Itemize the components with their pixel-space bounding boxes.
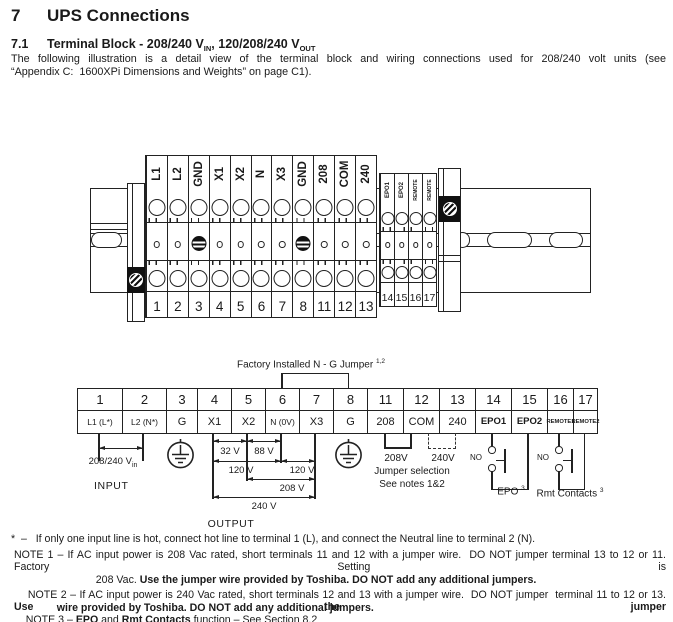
- cell-number: 4: [198, 389, 231, 411]
- terminal-screw-icon: [399, 242, 405, 248]
- terminal-screw-icon: [363, 241, 370, 248]
- rmt-contacts-label: Rmt Contacts 3: [537, 487, 604, 499]
- dim-label: 240 V: [252, 501, 277, 512]
- dim-label: 208 V: [280, 483, 305, 494]
- cell-number: 1: [78, 389, 122, 411]
- terminal-screw-icon: [413, 242, 419, 248]
- epo-label: EPO 3: [497, 485, 525, 497]
- terminal-table: 1L1 (L*) 2L2 (N*) 3G 4X1 5X2 6N (0V) 7X3…: [77, 388, 598, 434]
- terminal-column: L1 1: [146, 156, 167, 317]
- terminal-cell: 6N (0V): [265, 389, 299, 433]
- rmt-wire: [558, 433, 560, 446]
- note-3: NOTE 3 – EPO and Rmt Contacts function –…: [14, 602, 666, 622]
- input-label: INPUT: [94, 480, 129, 492]
- cell-number: 12: [404, 389, 439, 411]
- terminal-number: 1: [147, 299, 167, 314]
- cell-number: 14: [476, 389, 511, 411]
- wire-port-icon: [358, 270, 375, 287]
- terminal-label: X3: [276, 167, 288, 181]
- jumper-selection-text: Jumper selection: [374, 466, 450, 477]
- wire-port-icon: [148, 199, 165, 216]
- terminal-column: EPO2 15: [394, 174, 408, 306]
- wire-port-icon: [381, 266, 394, 279]
- cell-label: X3: [300, 411, 333, 434]
- terminal-screw-icon: [279, 241, 286, 248]
- terminal-label: X2: [235, 167, 247, 181]
- terminal-cell: 5X2: [231, 389, 265, 433]
- terminal-label: GND: [297, 161, 309, 187]
- wire-port-icon: [337, 199, 354, 216]
- terminal-label: N: [255, 170, 267, 178]
- terminal-label: L2: [172, 167, 184, 180]
- dim-arrow-32v: [213, 441, 247, 442]
- terminal-screw-icon: [237, 241, 244, 248]
- cell-number: 17: [574, 389, 597, 411]
- terminal-cell: 16REMOTE1: [547, 389, 573, 433]
- wire-port-icon: [169, 270, 186, 287]
- wire-port-icon: [316, 270, 333, 287]
- terminal-screw-icon: [342, 241, 349, 248]
- rmt-no-label: NO: [537, 453, 549, 462]
- cell-number: 5: [232, 389, 265, 411]
- terminal-screw-icon: [258, 241, 265, 248]
- ground-screw-icon: [191, 236, 206, 251]
- cell-number: 7: [300, 389, 333, 411]
- terminal-number: 8: [293, 299, 313, 314]
- output-wire-x1: [212, 433, 214, 499]
- terminal-number: 4: [210, 299, 230, 314]
- cell-label: X1: [198, 411, 231, 434]
- cell-label: L2 (N*): [123, 411, 166, 434]
- screw-head-icon: [129, 273, 143, 287]
- terminal-cell: 7X3: [299, 389, 333, 433]
- subsection-number: 7.1: [11, 37, 47, 51]
- terminal-column: REMOTE 16: [408, 174, 422, 306]
- cell-label: N (0V): [266, 411, 299, 434]
- cell-label: REMOTE1: [548, 411, 573, 434]
- cell-label: 208: [368, 411, 403, 434]
- terminal-number: 11: [314, 299, 334, 314]
- dim-label: 120 V: [229, 465, 254, 476]
- screw-head-icon: [443, 202, 457, 216]
- dim-label: 32 V: [220, 446, 240, 457]
- subsection-title: 7.1Terminal Block - 208/240 VIN, 120/208…: [11, 37, 315, 51]
- terminal-number: 2: [168, 299, 188, 314]
- wire-port-icon: [381, 212, 394, 225]
- cell-label: G: [334, 411, 367, 434]
- terminal-column: 208 11: [313, 156, 334, 317]
- terminal-label: X1: [214, 167, 226, 181]
- wire-port-icon: [211, 270, 228, 287]
- terminal-column: N 6: [251, 156, 272, 317]
- cell-label: REMOTE2: [574, 411, 597, 434]
- terminal-number: 15: [395, 292, 408, 304]
- jumper-label-208: 208V: [384, 453, 407, 464]
- intro-line-2: “Appendix C: 1600XPi Dimensions and Weig…: [11, 66, 666, 78]
- wire-port-icon: [253, 270, 270, 287]
- terminal-label: EPO1: [385, 182, 391, 198]
- terminal-number: 16: [409, 292, 422, 304]
- terminal-column: X3 7: [271, 156, 292, 317]
- input-dimension-arrow: [99, 448, 143, 449]
- terminal-screw-icon: [321, 241, 328, 248]
- terminal-cell: 11208: [367, 389, 403, 433]
- jumper-selection-text: See notes 1&2: [379, 479, 445, 490]
- subscript-in: IN: [204, 44, 212, 53]
- terminal-screw-icon: [385, 242, 391, 248]
- end-stop-lines: [439, 255, 460, 262]
- dim-arrow-88v: [247, 441, 281, 442]
- cell-label: EPO1: [476, 411, 511, 434]
- cell-number: 16: [548, 389, 573, 411]
- cell-label: G: [167, 411, 197, 434]
- rail-slot: [549, 232, 583, 248]
- pushbutton-icon: [496, 460, 505, 461]
- wire-port-icon: [169, 199, 186, 216]
- contact-node-icon: [488, 446, 496, 454]
- factory-jumper-label: Factory Installed N - G Jumper 1,2: [237, 358, 385, 370]
- terminal-label: EPO2: [399, 182, 405, 198]
- wire-port-icon: [274, 199, 291, 216]
- jumper-solid-208: [384, 433, 412, 449]
- dim-label: 120 V: [290, 465, 315, 476]
- wire-port-icon: [358, 199, 375, 216]
- pushbutton-icon: [563, 460, 572, 461]
- wire-port-icon: [423, 212, 436, 225]
- terminal-cell: 12COM: [403, 389, 439, 433]
- terminal-cell: 8G: [333, 389, 367, 433]
- cell-label: COM: [404, 411, 439, 434]
- cell-label: EPO2: [512, 411, 547, 434]
- factory-jumper-line: [281, 373, 349, 374]
- rmt-wire: [584, 433, 586, 490]
- terminal-cell: 1L1 (L*): [78, 389, 122, 433]
- terminal-screw-icon: [154, 241, 161, 248]
- terminal-cell: 15EPO2: [511, 389, 547, 433]
- cell-label: 240: [440, 411, 475, 434]
- terminal-column-gnd: GND 8: [292, 156, 313, 317]
- wire-port-icon: [337, 270, 354, 287]
- factory-jumper-line: [348, 373, 350, 388]
- terminal-screw-icon: [427, 242, 433, 248]
- end-stop-right: [438, 168, 461, 312]
- end-stop-screw-right: [439, 196, 460, 222]
- output-label: OUTPUT: [208, 518, 255, 530]
- epo-wire: [527, 433, 529, 490]
- cell-number: 3: [167, 389, 197, 411]
- terminal-cell: 17REMOTE2: [573, 389, 597, 433]
- subscript-out: OUT: [300, 44, 316, 53]
- section-number: 7: [11, 6, 47, 26]
- end-stop-rib: [132, 184, 133, 321]
- terminal-column: REMOTE 17: [422, 174, 436, 306]
- wire-port-icon: [190, 199, 207, 216]
- wire-port-icon: [274, 270, 291, 287]
- dim-arrow-120v-right: [281, 461, 315, 462]
- terminal-number: 13: [356, 299, 376, 314]
- cell-number: 6: [266, 389, 299, 411]
- intro-line-1: The following illustration is a detail v…: [11, 53, 666, 65]
- cell-number: 13: [440, 389, 475, 411]
- end-stop-screw-left: [127, 267, 145, 293]
- wire-port-icon: [190, 270, 207, 287]
- terminal-block-main: L1 1 L2 2 GND 3 X1: [145, 155, 377, 318]
- terminal-label: 240: [360, 164, 372, 183]
- terminal-label: 208: [318, 164, 330, 183]
- end-stop-rib: [443, 169, 444, 311]
- terminal-cell: 13240: [439, 389, 475, 433]
- manual-page: 7UPS Connections 7.1Terminal Block - 208…: [0, 0, 673, 622]
- terminal-number: 3: [189, 299, 209, 314]
- wire-port-icon: [148, 270, 165, 287]
- terminal-number: 12: [335, 299, 355, 314]
- ground-symbol-icon: [334, 439, 363, 469]
- epo-wire: [491, 471, 493, 490]
- end-stop-left: [127, 183, 145, 322]
- terminal-number: 17: [423, 292, 436, 304]
- wire-port-icon: [395, 212, 408, 225]
- terminal-label: GND: [193, 161, 205, 187]
- contact-node-icon: [555, 446, 563, 454]
- cell-number: 8: [334, 389, 367, 411]
- page-title: 7UPS Connections: [11, 6, 190, 26]
- section-title: UPS Connections: [47, 6, 190, 25]
- terminal-screw-icon: [175, 241, 182, 248]
- terminal-label: COM: [339, 161, 351, 188]
- terminal-number: 5: [231, 299, 251, 314]
- wire-port-icon: [211, 199, 228, 216]
- terminal-column: X2 5: [230, 156, 251, 317]
- cell-number: 2: [123, 389, 166, 411]
- wire-port-icon: [395, 266, 408, 279]
- jumper-label-240: 240V: [431, 453, 454, 464]
- terminal-column: 240 13: [355, 156, 376, 317]
- wire-port-icon: [232, 199, 249, 216]
- terminal-label: REMOTE: [427, 179, 433, 200]
- terminal-cell: 14EPO1: [475, 389, 511, 433]
- rail-slot: [487, 232, 532, 248]
- ground-symbol-icon: [166, 439, 195, 469]
- factory-jumper-line: [281, 373, 283, 388]
- terminal-column: COM 12: [334, 156, 355, 317]
- cell-label: L1 (L*): [78, 411, 122, 434]
- dim-label: 88 V: [254, 446, 274, 457]
- wire-port-icon: [423, 266, 436, 279]
- terminal-block-aux: EPO1 14 EPO2 15 REMOTE 16 REM: [379, 173, 437, 307]
- wire-port-icon: [253, 199, 270, 216]
- dim-arrow-120v-left: [213, 461, 281, 462]
- footnote-star: * – If only one input line is hot, conne…: [11, 533, 665, 545]
- terminal-column: EPO1 14: [380, 174, 394, 306]
- wire-port-icon: [232, 270, 249, 287]
- terminal-cell: 2L2 (N*): [122, 389, 166, 433]
- rail-slot: [91, 232, 122, 248]
- wire-port-icon: [409, 266, 422, 279]
- terminal-column: L2 2: [167, 156, 188, 317]
- cell-number: 15: [512, 389, 547, 411]
- input-voltage-label: 208/240 Vin: [89, 456, 138, 469]
- terminal-screw-icon: [216, 241, 223, 248]
- terminal-cell: 3G: [166, 389, 197, 433]
- epo-wire: [491, 433, 493, 446]
- dim-arrow-240v: [213, 497, 315, 498]
- terminal-number: 6: [252, 299, 272, 314]
- terminal-number: 14: [381, 292, 394, 304]
- terminal-number: 7: [272, 299, 292, 314]
- terminal-label: L1: [151, 167, 163, 180]
- wire-port-icon: [295, 199, 312, 216]
- terminal-label: REMOTE: [413, 179, 419, 200]
- epo-no-label: NO: [470, 453, 482, 462]
- terminal-column: X1 4: [209, 156, 230, 317]
- cell-number: 11: [368, 389, 403, 411]
- wire-port-icon: [316, 199, 333, 216]
- terminal-cell: 4X1: [197, 389, 231, 433]
- wire-port-icon: [409, 212, 422, 225]
- dim-arrow-208v: [247, 479, 315, 480]
- wire-port-icon: [295, 270, 312, 287]
- terminal-column-gnd: GND 3: [188, 156, 209, 317]
- ground-screw-icon: [296, 236, 311, 251]
- cell-label: X2: [232, 411, 265, 434]
- jumper-dashed-240: [428, 433, 456, 449]
